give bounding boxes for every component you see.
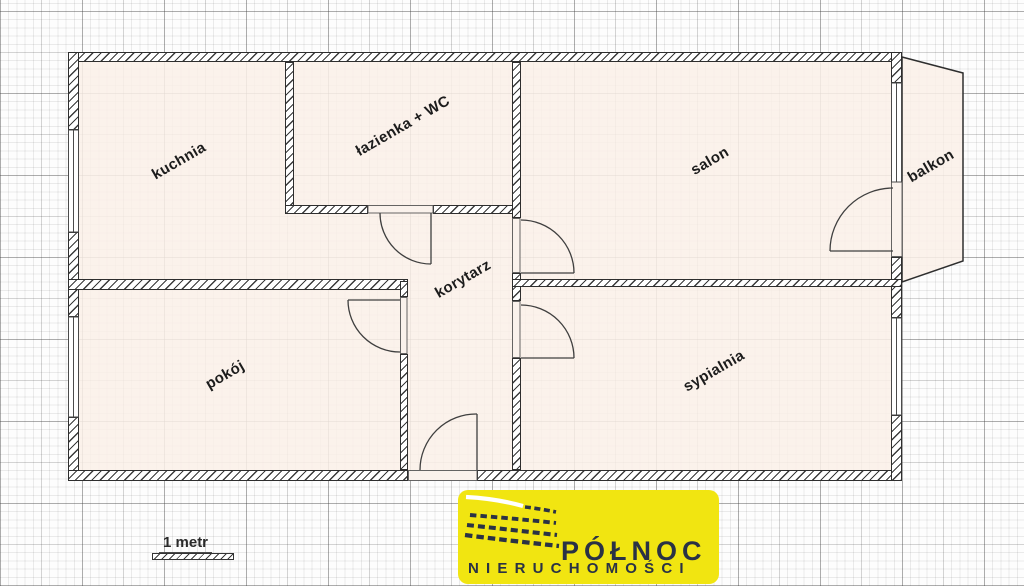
- salon-window: [892, 83, 902, 182]
- wall-right-lower: [891, 415, 902, 481]
- wall-hall-salon-upper: [512, 62, 521, 218]
- wall-top: [68, 52, 902, 62]
- logo-fan-icon: [460, 490, 572, 550]
- scale-label: 1 metr: [159, 534, 212, 554]
- wall-right-middle: [891, 257, 902, 318]
- wall-left-upper: [68, 52, 79, 130]
- wall-salon-sypialnia-divider: [512, 279, 902, 287]
- logo-dash-row-3: [467, 525, 557, 535]
- wall-hall-salon-middle: [512, 273, 521, 301]
- sypialnia-window: [892, 318, 902, 415]
- scale-bar: [152, 553, 234, 560]
- wall-bottom-right: [477, 470, 902, 481]
- wall-bottom-left: [68, 470, 408, 481]
- floor-plan-page: kuchnia łazienka + WC salon balkon koryt…: [0, 0, 1024, 586]
- logo-dash-row-1: [525, 507, 556, 512]
- wall-bathroom-bottom-left: [285, 205, 368, 214]
- entrance-door-frame: [409, 471, 478, 481]
- wall-hall-salon-lower: [512, 358, 521, 470]
- room-label-balkon: balkon: [905, 146, 957, 186]
- logo-dash-row-2: [470, 515, 556, 523]
- logo-dash-row-4: [465, 535, 559, 546]
- kitchen-window: [69, 130, 79, 232]
- balcony-door-frame: [892, 182, 903, 257]
- wall-kitchen-bottom: [68, 279, 408, 290]
- wall-left-middle: [68, 232, 79, 317]
- pokoj-window: [69, 317, 79, 417]
- wall-right-upper: [891, 52, 902, 83]
- logo-swoosh-icon: [466, 497, 523, 506]
- logo-polnoc-nieruchomosci: PÓŁNOC NIERUCHOMOŚCI: [458, 490, 719, 584]
- wall-bathroom-left: [285, 62, 294, 213]
- logo-subtitle: NIERUCHOMOŚCI: [468, 561, 691, 576]
- wall-pokoj-right-upper: [400, 281, 408, 297]
- wall-bathroom-bottom-right: [433, 205, 521, 214]
- wall-pokoj-right-lower: [400, 354, 408, 470]
